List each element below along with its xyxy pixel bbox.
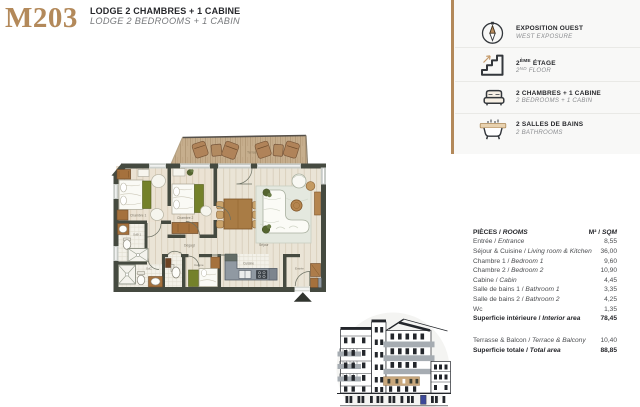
svg-text:Chambre 1: Chambre 1 <box>130 214 146 218</box>
svg-text:Dégagt: Dégagt <box>184 244 195 248</box>
svg-text:Cuisine: Cuisine <box>243 262 254 266</box>
svg-text:Séjour: Séjour <box>259 243 269 247</box>
svg-text:SdB 1: SdB 1 <box>133 233 142 237</box>
svg-text:Chambre 2: Chambre 2 <box>177 216 193 220</box>
svg-text:Entrée: Entrée <box>295 267 304 271</box>
